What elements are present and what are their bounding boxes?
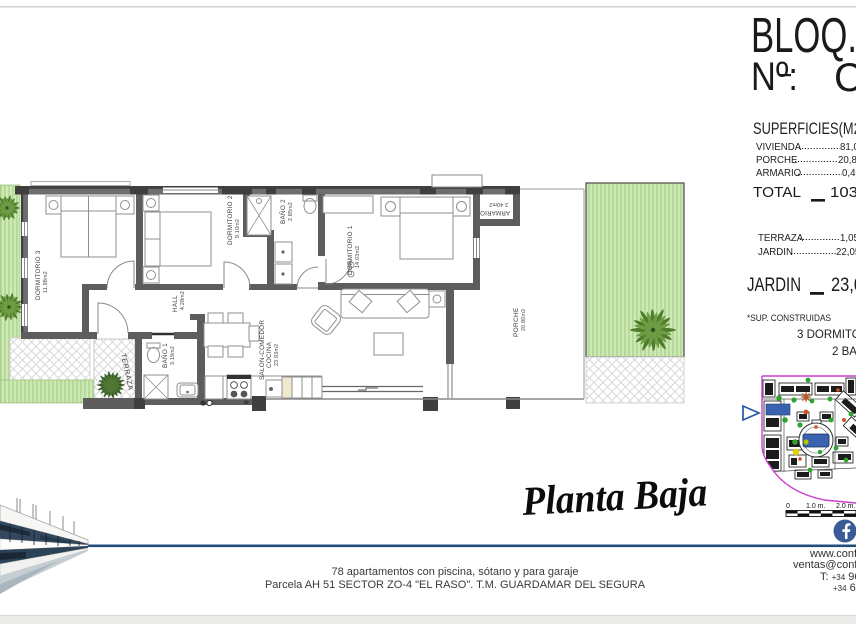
svg-text:20.80m2: 20.80m2 bbox=[521, 309, 527, 331]
svg-text:103: 103 bbox=[830, 185, 856, 201]
svg-text:JARDIN: JARDIN bbox=[747, 275, 801, 296]
svg-text:SUPERFICIES(M2): SUPERFICIES(M2) bbox=[753, 120, 856, 138]
svg-text:BAÑO 1: BAÑO 1 bbox=[160, 343, 169, 368]
svg-text:3.19m2: 3.19m2 bbox=[170, 346, 176, 365]
svg-text:JARDIN: JARDIN bbox=[758, 247, 793, 258]
svg-text:1.0 m.: 1.0 m. bbox=[806, 503, 826, 510]
svg-text:Planta Baja: Planta Baja bbox=[520, 468, 708, 524]
svg-text:2 BAÑ: 2 BAÑ bbox=[832, 345, 856, 358]
svg-text:BAÑO 2: BAÑO 2 bbox=[278, 199, 287, 224]
svg-text:22,05: 22,05 bbox=[836, 247, 856, 258]
svg-text:ARMARIO: ARMARIO bbox=[756, 168, 802, 179]
svg-text:ventas@conf: ventas@conf bbox=[793, 559, 856, 571]
svg-text:*SUP. CONSTRUIDAS: *SUP. CONSTRUIDAS bbox=[747, 313, 831, 324]
svg-text:2.85m2: 2.85m2 bbox=[288, 202, 294, 221]
svg-text:2.0 m.: 2.0 m. bbox=[836, 503, 856, 510]
svg-text:20,80: 20,80 bbox=[838, 155, 856, 166]
svg-text:Nº:: Nº: bbox=[751, 55, 798, 99]
svg-text:+34 62: +34 62 bbox=[833, 582, 856, 594]
svg-text:0: 0 bbox=[786, 503, 790, 510]
svg-text:ARMARIO: ARMARIO bbox=[480, 209, 510, 215]
svg-text:VIVIENDA: VIVIENDA bbox=[756, 142, 802, 153]
svg-text:COCINA: COCINA bbox=[266, 341, 273, 368]
svg-text:HALL: HALL bbox=[172, 295, 179, 312]
svg-text:9.10m2: 9.10m2 bbox=[235, 219, 241, 238]
svg-text:DORMITORIO 1: DORMITORIO 1 bbox=[347, 225, 354, 275]
svg-text:TOTAL: TOTAL bbox=[753, 185, 801, 201]
svg-text:PORCHE: PORCHE bbox=[513, 307, 520, 337]
svg-text:C1: C1 bbox=[834, 56, 856, 100]
svg-text:23,0: 23,0 bbox=[831, 275, 856, 296]
svg-text:11.98m2: 11.98m2 bbox=[43, 271, 49, 293]
svg-text:Parcela AH 51 SECTOR ZO-4 "EL: Parcela AH 51 SECTOR ZO-4 "EL RASO". T.M… bbox=[265, 579, 646, 591]
svg-text:PORCHE: PORCHE bbox=[756, 155, 798, 166]
svg-text:78 apartamentos con piscina, s: 78 apartamentos con piscina, sótano y pa… bbox=[331, 566, 578, 578]
svg-text:TERRAZA: TERRAZA bbox=[758, 233, 804, 244]
svg-text:SALON-COMEDOR: SALON-COMEDOR bbox=[259, 320, 266, 380]
svg-text:2.40m2: 2.40m2 bbox=[489, 201, 508, 207]
svg-text:DORMITORIO 2: DORMITORIO 2 bbox=[227, 195, 234, 245]
svg-text:DORMITORIO 3: DORMITORIO 3 bbox=[35, 250, 42, 300]
svg-text:23.93m2: 23.93m2 bbox=[274, 344, 280, 366]
svg-text:0,40: 0,40 bbox=[842, 168, 856, 179]
svg-text:81,05: 81,05 bbox=[840, 142, 856, 153]
svg-text:1,05: 1,05 bbox=[840, 233, 856, 244]
svg-text:3 DORMITOR: 3 DORMITOR bbox=[797, 329, 856, 341]
svg-text:14.03m2: 14.03m2 bbox=[355, 246, 361, 268]
svg-text:4.28m2: 4.28m2 bbox=[180, 291, 186, 310]
